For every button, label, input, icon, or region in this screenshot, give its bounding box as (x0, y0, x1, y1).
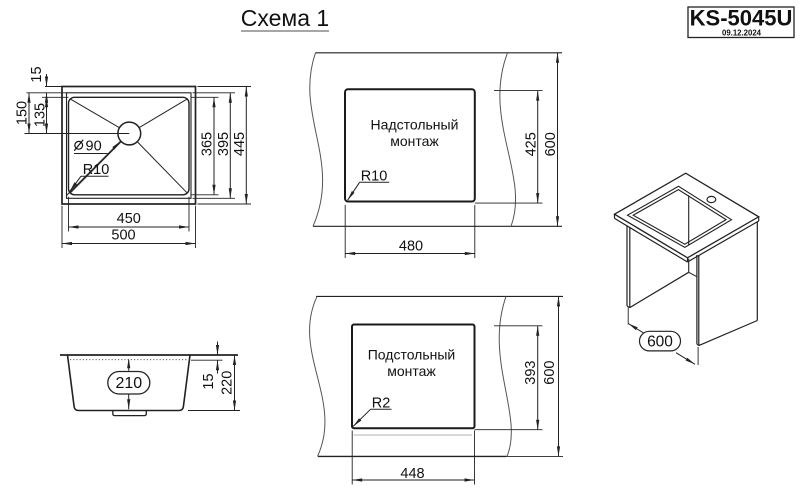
svg-text:600: 600 (542, 360, 558, 384)
svg-text:15: 15 (29, 66, 45, 82)
svg-text:Надстольный: Надстольный (371, 117, 459, 133)
svg-text:Подстольный: Подстольный (368, 347, 456, 363)
svg-text:448: 448 (400, 466, 424, 482)
svg-text:425: 425 (523, 132, 539, 156)
svg-text:90: 90 (86, 139, 102, 155)
svg-text:монтаж: монтаж (387, 363, 436, 379)
svg-text:393: 393 (523, 360, 539, 384)
svg-text:135: 135 (32, 103, 48, 127)
svg-text:480: 480 (399, 239, 423, 255)
svg-text:KS-5045U: KS-5045U (690, 6, 793, 31)
svg-text:600: 600 (647, 333, 673, 350)
svg-text:09.12.2024: 09.12.2024 (722, 28, 762, 37)
svg-text:600: 600 (543, 132, 559, 156)
svg-text:монтаж: монтаж (390, 133, 439, 149)
svg-text:500: 500 (111, 228, 135, 244)
svg-text:365: 365 (200, 132, 216, 156)
svg-text:210: 210 (115, 375, 142, 392)
svg-text:395: 395 (216, 132, 232, 156)
svg-text:450: 450 (117, 211, 141, 227)
svg-text:150: 150 (15, 101, 31, 125)
svg-text:220: 220 (219, 371, 235, 395)
svg-text:445: 445 (232, 132, 248, 156)
svg-text:Схема 1: Схема 1 (241, 5, 329, 31)
svg-text:15: 15 (201, 373, 217, 389)
